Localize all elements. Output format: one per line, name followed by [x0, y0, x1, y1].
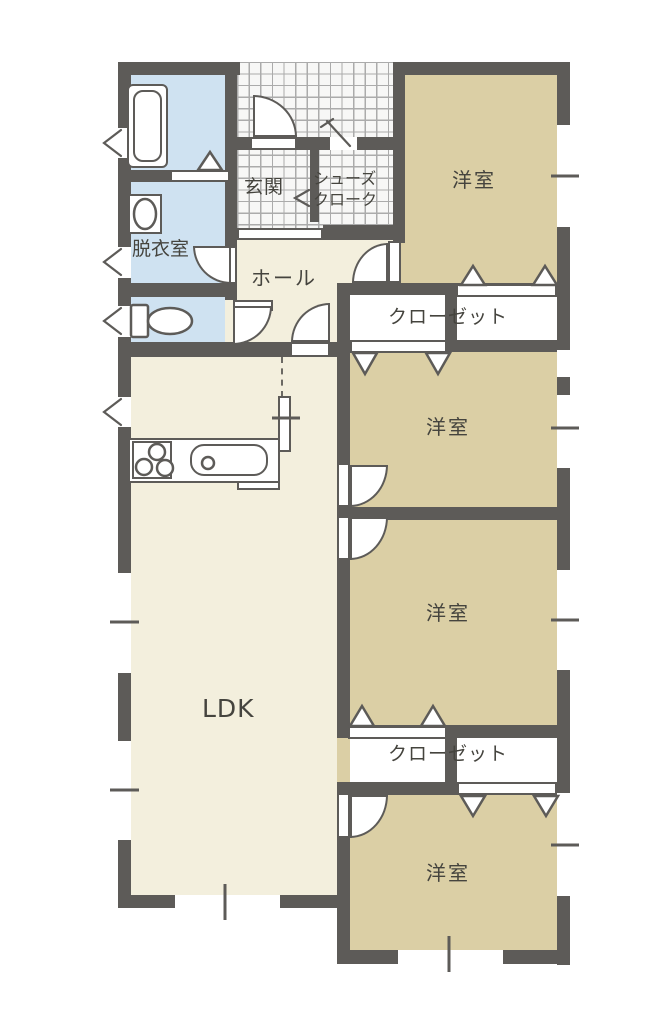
awning-window-icon: [104, 399, 121, 425]
bifold-door-icon: [426, 353, 450, 374]
room-label-closet-upper: クローゼット: [388, 307, 508, 329]
room-label-ldk: LDK: [202, 695, 255, 724]
passage-arrow-icon: [295, 190, 309, 206]
room-label-hall: ホール: [251, 267, 317, 290]
bifold-door-icon: [461, 266, 485, 285]
bifold-door-icon: [353, 353, 377, 374]
awning-window-icon: [104, 130, 121, 156]
bifold-door-icon: [461, 796, 485, 816]
bifold-door-icon: [533, 266, 557, 285]
bifold-door-icon: [534, 796, 558, 816]
bifold-door-icon: [350, 706, 374, 726]
room-label-dressing: 脱衣室: [132, 239, 189, 261]
floor-plan: 玄関 シューズ クローク 脱衣室 ホール 洋室 クローゼット 洋室 洋室 LDK…: [0, 0, 661, 1024]
plan-symbols: [0, 0, 661, 1024]
room-label-bedroom-mid-lower: 洋室: [426, 602, 470, 625]
gas-stove-icon: [157, 460, 173, 476]
awning-window-icon: [104, 249, 121, 275]
room-label-closet-lower: クローゼット: [388, 744, 508, 766]
awning-window-icon: [104, 308, 121, 334]
folding-door-icon: [198, 152, 222, 170]
room-label-entrance: 玄関: [244, 177, 284, 199]
toilet-icon: [148, 308, 192, 334]
kitchen-sink-icon: [202, 457, 214, 469]
gas-stove-icon: [149, 444, 165, 460]
room-label-shoe-closet: シューズ クローク: [313, 168, 377, 210]
room-label-bedroom-mid-upper: 洋室: [426, 416, 470, 439]
room-label-bedroom-top: 洋室: [452, 169, 496, 192]
shoe-closet-line2: クローク: [313, 189, 377, 210]
shoe-closet-line1: シューズ: [313, 168, 377, 189]
toilet-icon: [131, 305, 148, 337]
washbasin-icon: [134, 199, 156, 229]
room-label-bedroom-bottom: 洋室: [426, 862, 470, 885]
high-window-icon: [327, 121, 350, 146]
gas-stove-icon: [136, 459, 152, 475]
bifold-door-icon: [421, 706, 445, 726]
